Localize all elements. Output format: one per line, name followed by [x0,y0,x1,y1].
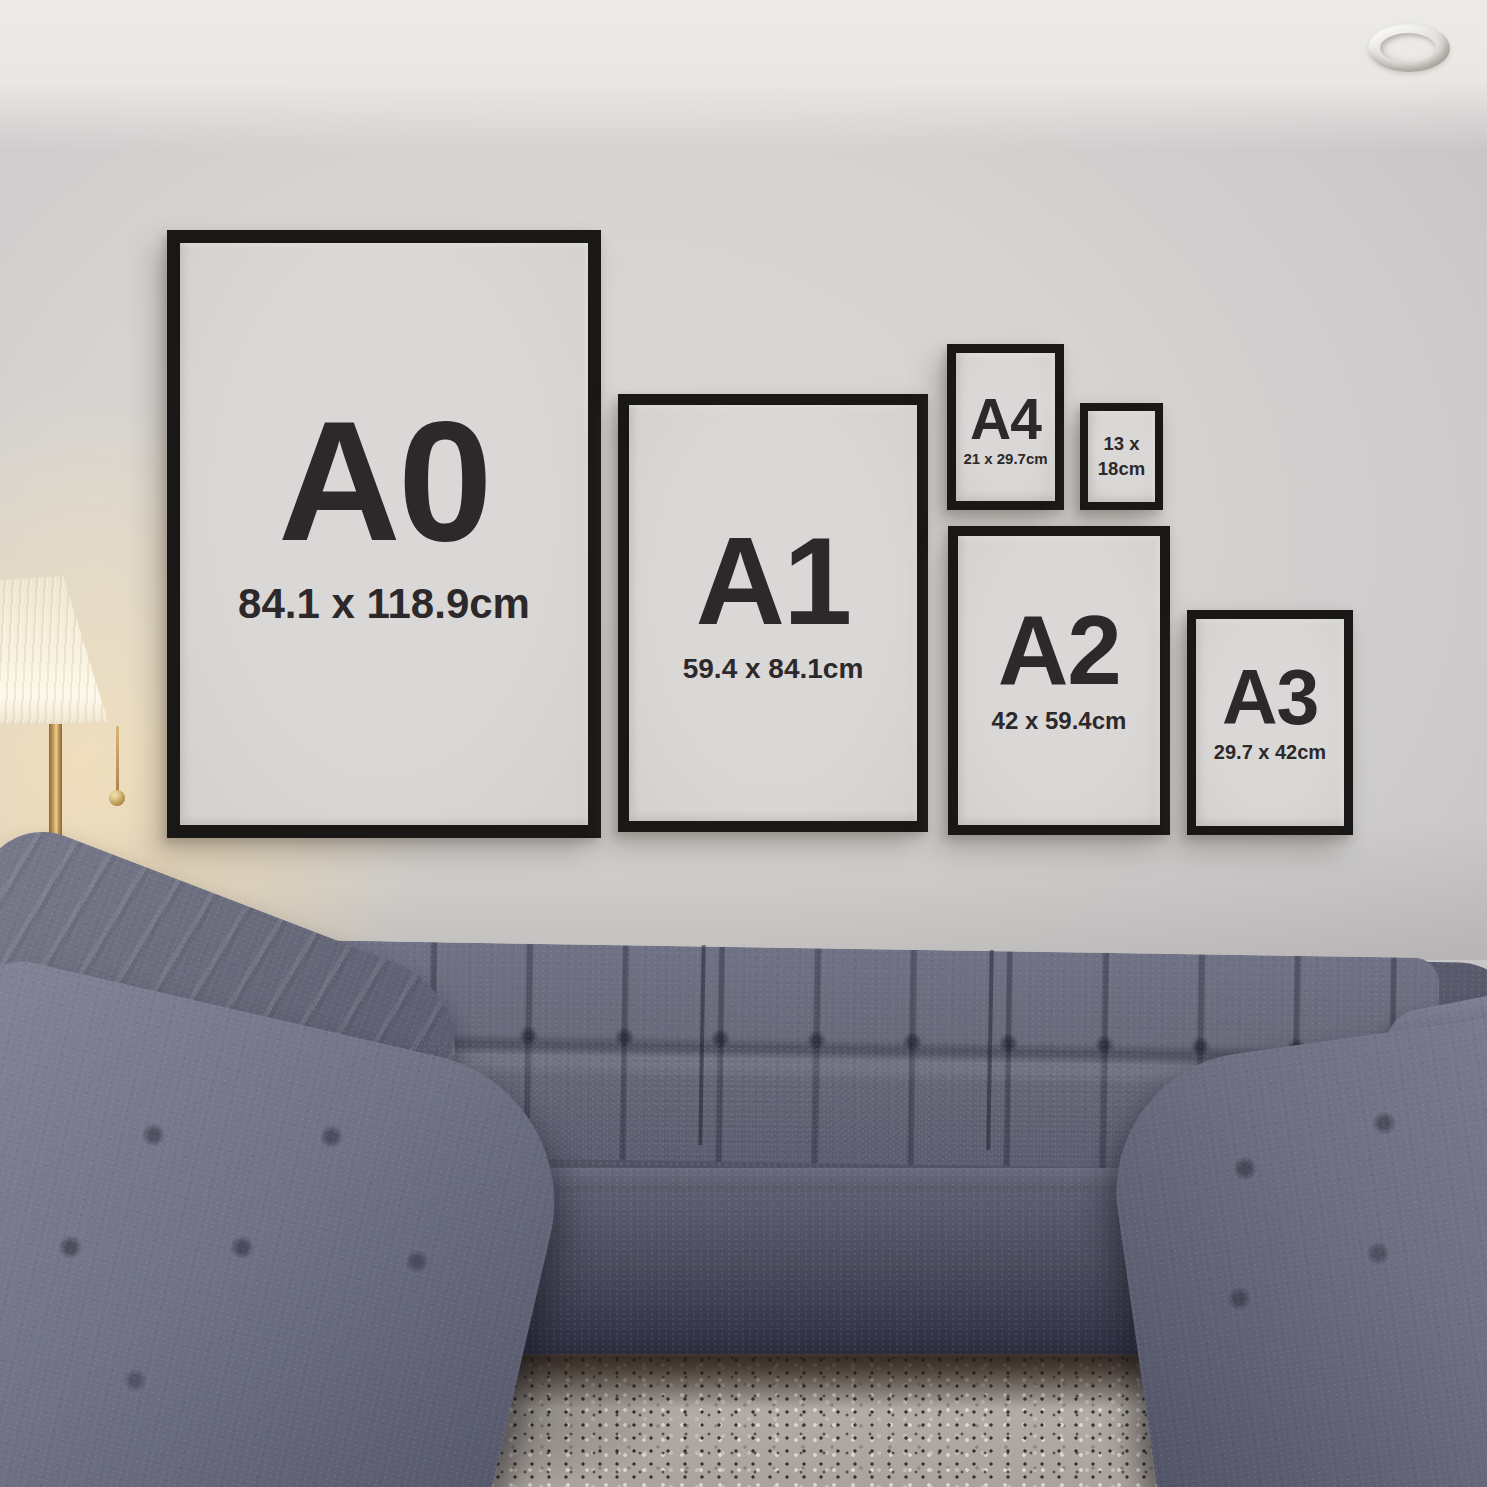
sectional-sofa [0,0,1487,1487]
living-room-poster-size-guide: A0 84.1 x 118.9cm A1 59.4 x 84.1cm A4 21… [0,0,1487,1487]
